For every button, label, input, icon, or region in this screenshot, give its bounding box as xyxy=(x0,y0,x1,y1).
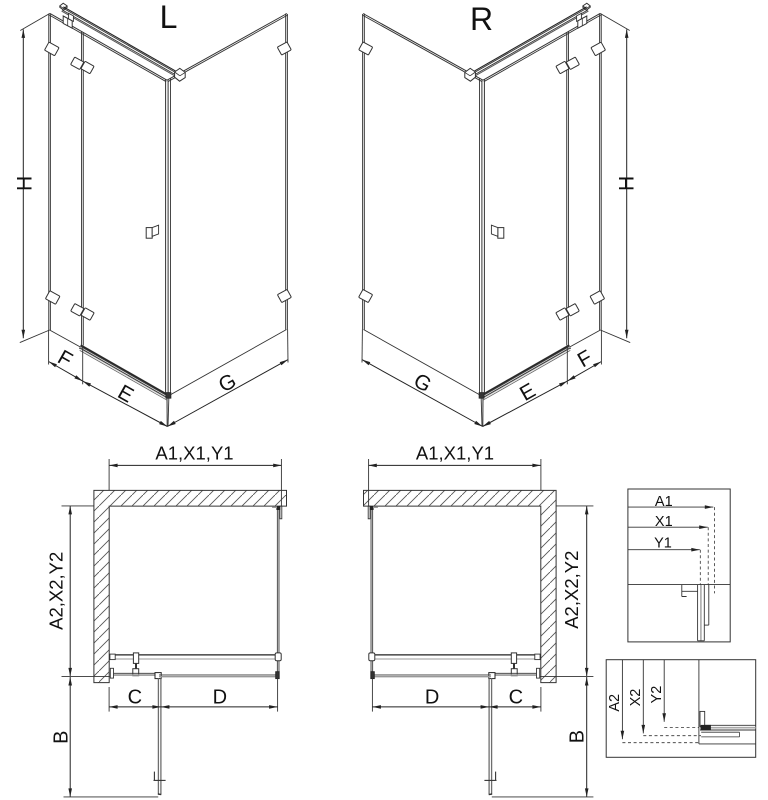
svg-text:X1: X1 xyxy=(655,514,673,530)
svg-text:A2: A2 xyxy=(607,694,623,712)
svg-text:X2: X2 xyxy=(628,689,644,707)
svg-text:B: B xyxy=(50,731,72,744)
svg-text:C: C xyxy=(509,686,523,708)
svg-text:Y1: Y1 xyxy=(654,536,672,552)
svg-text:A1,X1,Y1: A1,X1,Y1 xyxy=(416,442,494,463)
svg-text:H: H xyxy=(14,176,37,191)
svg-text:L: L xyxy=(160,0,178,35)
svg-text:B: B xyxy=(566,730,588,743)
svg-text:D: D xyxy=(213,686,227,708)
svg-text:D: D xyxy=(425,686,439,708)
svg-text:A1: A1 xyxy=(655,494,673,510)
svg-text:Y2: Y2 xyxy=(649,686,665,704)
svg-text:H: H xyxy=(616,176,639,191)
svg-text:A1,X1,Y1: A1,X1,Y1 xyxy=(155,442,233,463)
svg-text:A2,X2,Y2: A2,X2,Y2 xyxy=(46,552,67,630)
svg-text:C: C xyxy=(128,686,142,708)
svg-text:A2,X2,Y2: A2,X2,Y2 xyxy=(561,551,582,629)
svg-text:R: R xyxy=(470,1,493,37)
